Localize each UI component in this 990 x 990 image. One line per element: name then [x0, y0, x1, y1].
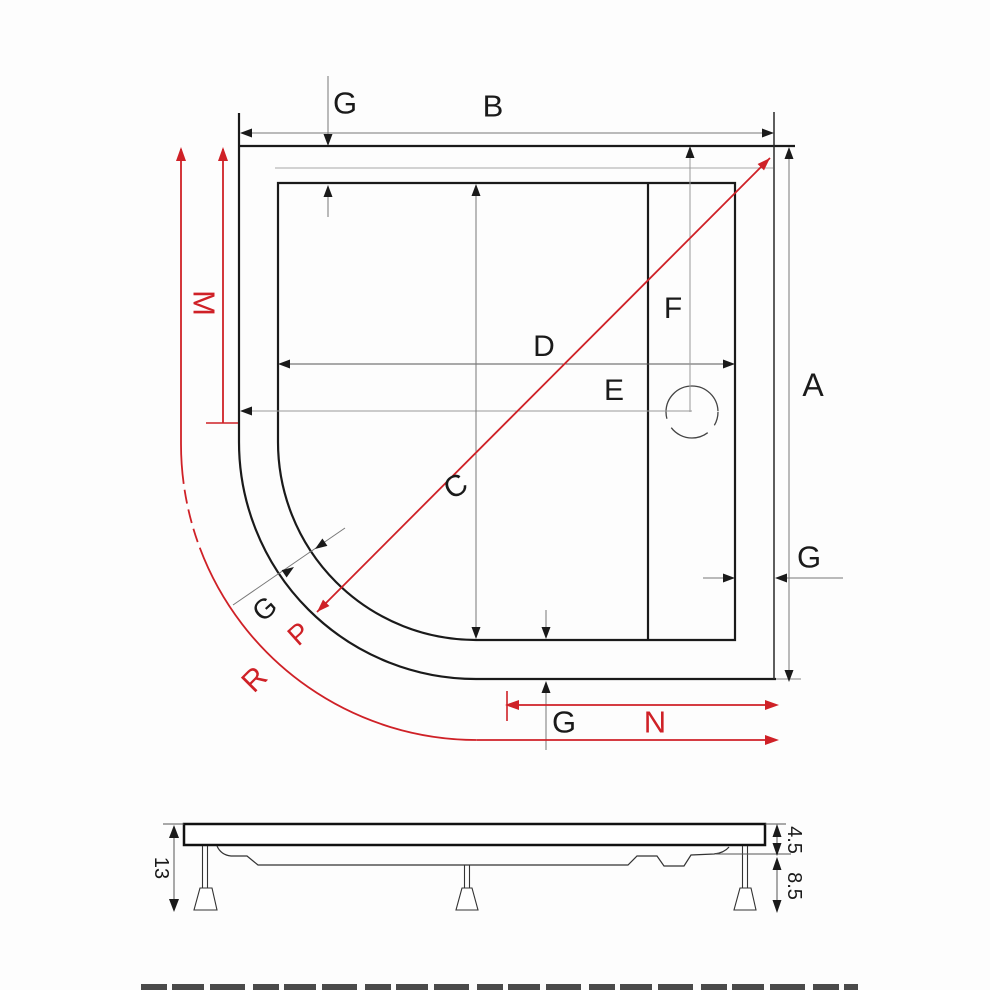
dim-e: [240, 407, 692, 416]
leg-right-foot: [734, 888, 756, 910]
label-f: F: [664, 294, 682, 324]
arrowhead: [240, 407, 252, 416]
side-pan-outline: [217, 846, 729, 866]
leg-left-stem: [203, 846, 208, 888]
arrowhead: [282, 567, 294, 578]
arrowhead: [169, 825, 179, 838]
arrowhead: [542, 627, 551, 639]
dim-f: [686, 146, 695, 412]
label-e: E: [604, 376, 624, 406]
cropped-text-artifact: [141, 984, 858, 990]
arrowhead: [762, 129, 774, 138]
dim-b: [240, 129, 774, 138]
top-view: [176, 76, 843, 750]
label-height-8-5: 8.5: [784, 872, 804, 900]
arrowhead: [765, 735, 779, 745]
label-g-bottom: G: [552, 707, 576, 738]
dim-r: [176, 147, 779, 745]
arrowhead: [773, 900, 782, 913]
dim-d: [278, 360, 735, 369]
shower-tray-dimension-diagram: G B A F D E C M G G P R G N 13 4.5 8.5: [0, 0, 990, 990]
label-height-13: 13: [151, 857, 171, 879]
dim-8-5: [773, 857, 782, 913]
arrowhead: [324, 134, 333, 146]
arrowhead: [176, 147, 186, 161]
arrowhead: [773, 857, 782, 870]
label-d: D: [533, 332, 555, 362]
arrowhead: [472, 184, 481, 196]
arrowhead: [723, 360, 735, 369]
arrowhead: [472, 627, 481, 639]
dim-p: [317, 158, 770, 612]
arrowhead: [775, 574, 787, 583]
side-legs: [194, 846, 756, 910]
arrowhead: [218, 147, 228, 161]
label-n: N: [644, 707, 666, 738]
label-g-top: G: [333, 88, 357, 119]
arrowhead: [785, 670, 794, 682]
side-view: [163, 824, 791, 913]
arrowhead: [686, 146, 695, 158]
diagram-linework: [0, 0, 990, 990]
arrowhead: [542, 681, 551, 693]
label-g-right: G: [797, 542, 821, 573]
radius-arc: [181, 444, 477, 740]
arrowhead: [785, 147, 794, 159]
arrowhead: [315, 539, 327, 550]
arrowhead: [773, 824, 782, 837]
arrowhead: [324, 185, 333, 197]
arrowhead: [723, 574, 735, 583]
label-b: B: [483, 91, 504, 122]
label-m: M: [189, 290, 220, 316]
side-slab: [184, 824, 765, 845]
dim-g-corner: [233, 528, 345, 605]
leg-left-foot: [194, 888, 217, 910]
leg-middle-stem: [465, 865, 470, 888]
leg-right-stem: [743, 846, 748, 888]
dim-a: [785, 147, 794, 682]
arrowhead: [240, 129, 252, 138]
label-height-4-5: 4.5: [784, 826, 804, 854]
label-a: A: [802, 369, 823, 401]
arrowhead: [278, 360, 290, 369]
dim-4-5: [773, 824, 782, 856]
arrowhead: [765, 700, 779, 710]
dim-g-right: [703, 574, 843, 583]
leg-middle-foot: [456, 888, 478, 910]
tray-outer-outline: [238, 113, 795, 679]
dim-m: [206, 147, 238, 423]
arrowhead: [169, 899, 179, 912]
drain-circle: [666, 386, 718, 438]
